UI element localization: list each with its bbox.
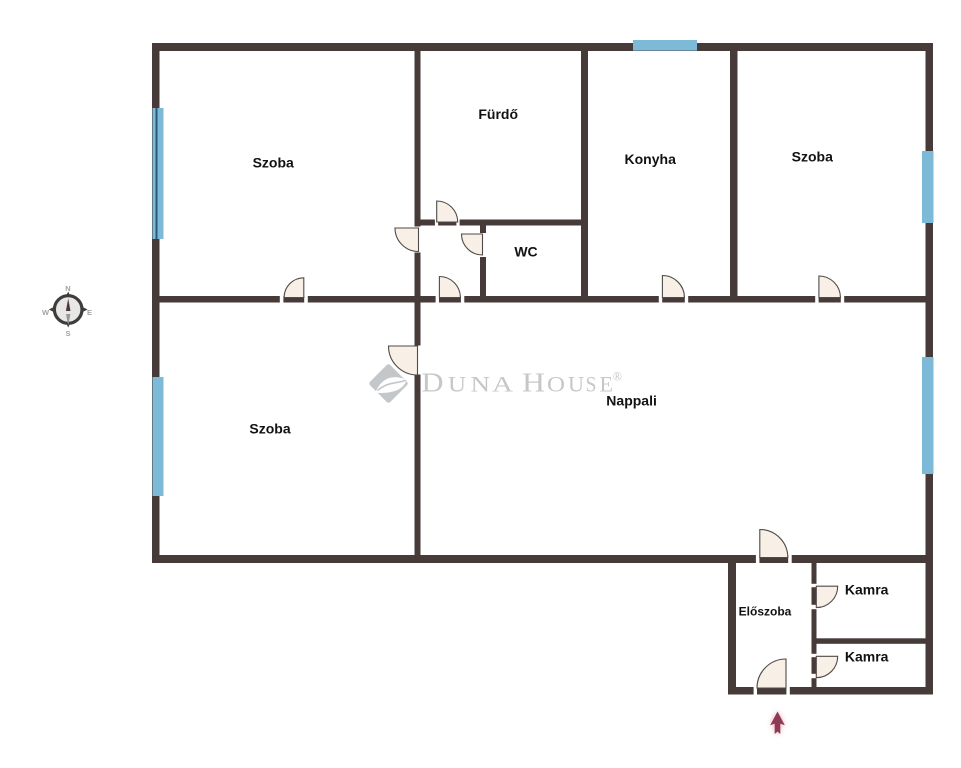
svg-text:Kamra: Kamra bbox=[845, 649, 889, 665]
svg-text:Nappali: Nappali bbox=[606, 393, 657, 409]
svg-text:E: E bbox=[87, 308, 92, 317]
svg-text:Szoba: Szoba bbox=[249, 420, 290, 436]
svg-text:Fürdő: Fürdő bbox=[478, 106, 518, 122]
svg-text:Kamra: Kamra bbox=[845, 582, 889, 598]
svg-text:S: S bbox=[586, 372, 597, 397]
svg-text:Szoba: Szoba bbox=[253, 155, 294, 171]
svg-text:A: A bbox=[492, 372, 513, 397]
svg-text:WC: WC bbox=[514, 243, 537, 259]
svg-text:W: W bbox=[42, 308, 50, 317]
svg-text:N: N bbox=[471, 372, 491, 397]
svg-text:H: H bbox=[522, 367, 545, 398]
svg-text:U: U bbox=[448, 372, 466, 397]
svg-text:®: ® bbox=[613, 370, 623, 384]
svg-text:U: U bbox=[568, 372, 584, 397]
svg-text:Szoba: Szoba bbox=[792, 149, 833, 165]
svg-text:Előszoba: Előszoba bbox=[739, 605, 792, 619]
svg-text:O: O bbox=[547, 372, 565, 397]
svg-text:Konyha: Konyha bbox=[625, 151, 677, 167]
svg-text:S: S bbox=[65, 329, 70, 338]
svg-text:N: N bbox=[65, 284, 70, 293]
svg-text:D: D bbox=[422, 367, 444, 398]
